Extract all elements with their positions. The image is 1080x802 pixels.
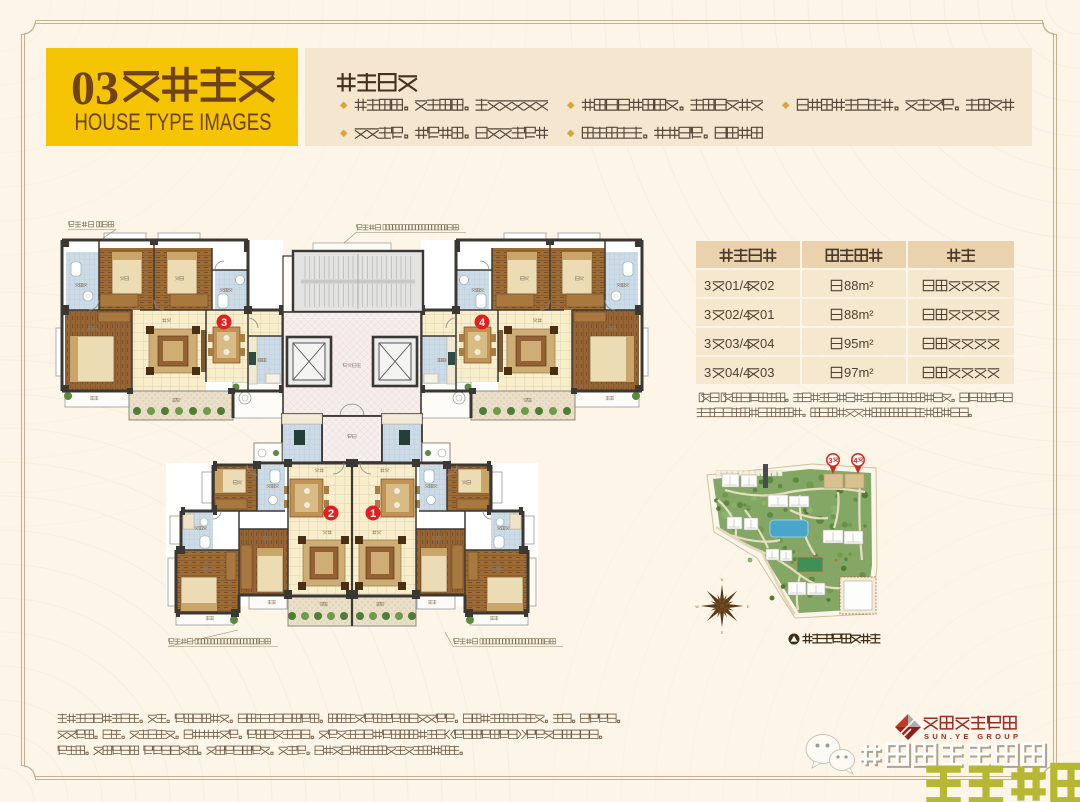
svg-text:03: 03 xyxy=(71,62,119,115)
svg-text:E: E xyxy=(747,605,750,609)
svg-text:3: 3 xyxy=(704,278,711,293)
svg-text:N: N xyxy=(721,578,724,582)
svg-text:88m²: 88m² xyxy=(844,278,874,293)
svg-text:88m²: 88m² xyxy=(844,307,874,322)
svg-text:02/4: 02/4 xyxy=(725,307,750,322)
svg-text:S: S xyxy=(721,631,724,635)
svg-text:3: 3 xyxy=(704,365,711,380)
svg-text:01: 01 xyxy=(760,307,774,322)
svg-text:2: 2 xyxy=(328,508,334,520)
svg-text:03/4: 03/4 xyxy=(725,336,750,351)
svg-text:W: W xyxy=(695,605,699,609)
svg-text:97m²: 97m² xyxy=(844,365,874,380)
svg-text:3: 3 xyxy=(704,336,711,351)
svg-text:HOUSE TYPE IMAGES: HOUSE TYPE IMAGES xyxy=(75,109,272,136)
svg-text:95m²: 95m² xyxy=(844,336,874,351)
svg-text:04/4: 04/4 xyxy=(725,365,750,380)
svg-text:3: 3 xyxy=(221,317,227,329)
svg-text:04: 04 xyxy=(760,336,774,351)
svg-text:3: 3 xyxy=(828,456,832,465)
svg-text:3: 3 xyxy=(704,307,711,322)
svg-text:01/4: 01/4 xyxy=(725,278,750,293)
svg-text:03: 03 xyxy=(760,365,774,380)
svg-text:4: 4 xyxy=(479,317,486,329)
svg-text:02: 02 xyxy=(760,278,774,293)
svg-text:1: 1 xyxy=(370,508,376,520)
